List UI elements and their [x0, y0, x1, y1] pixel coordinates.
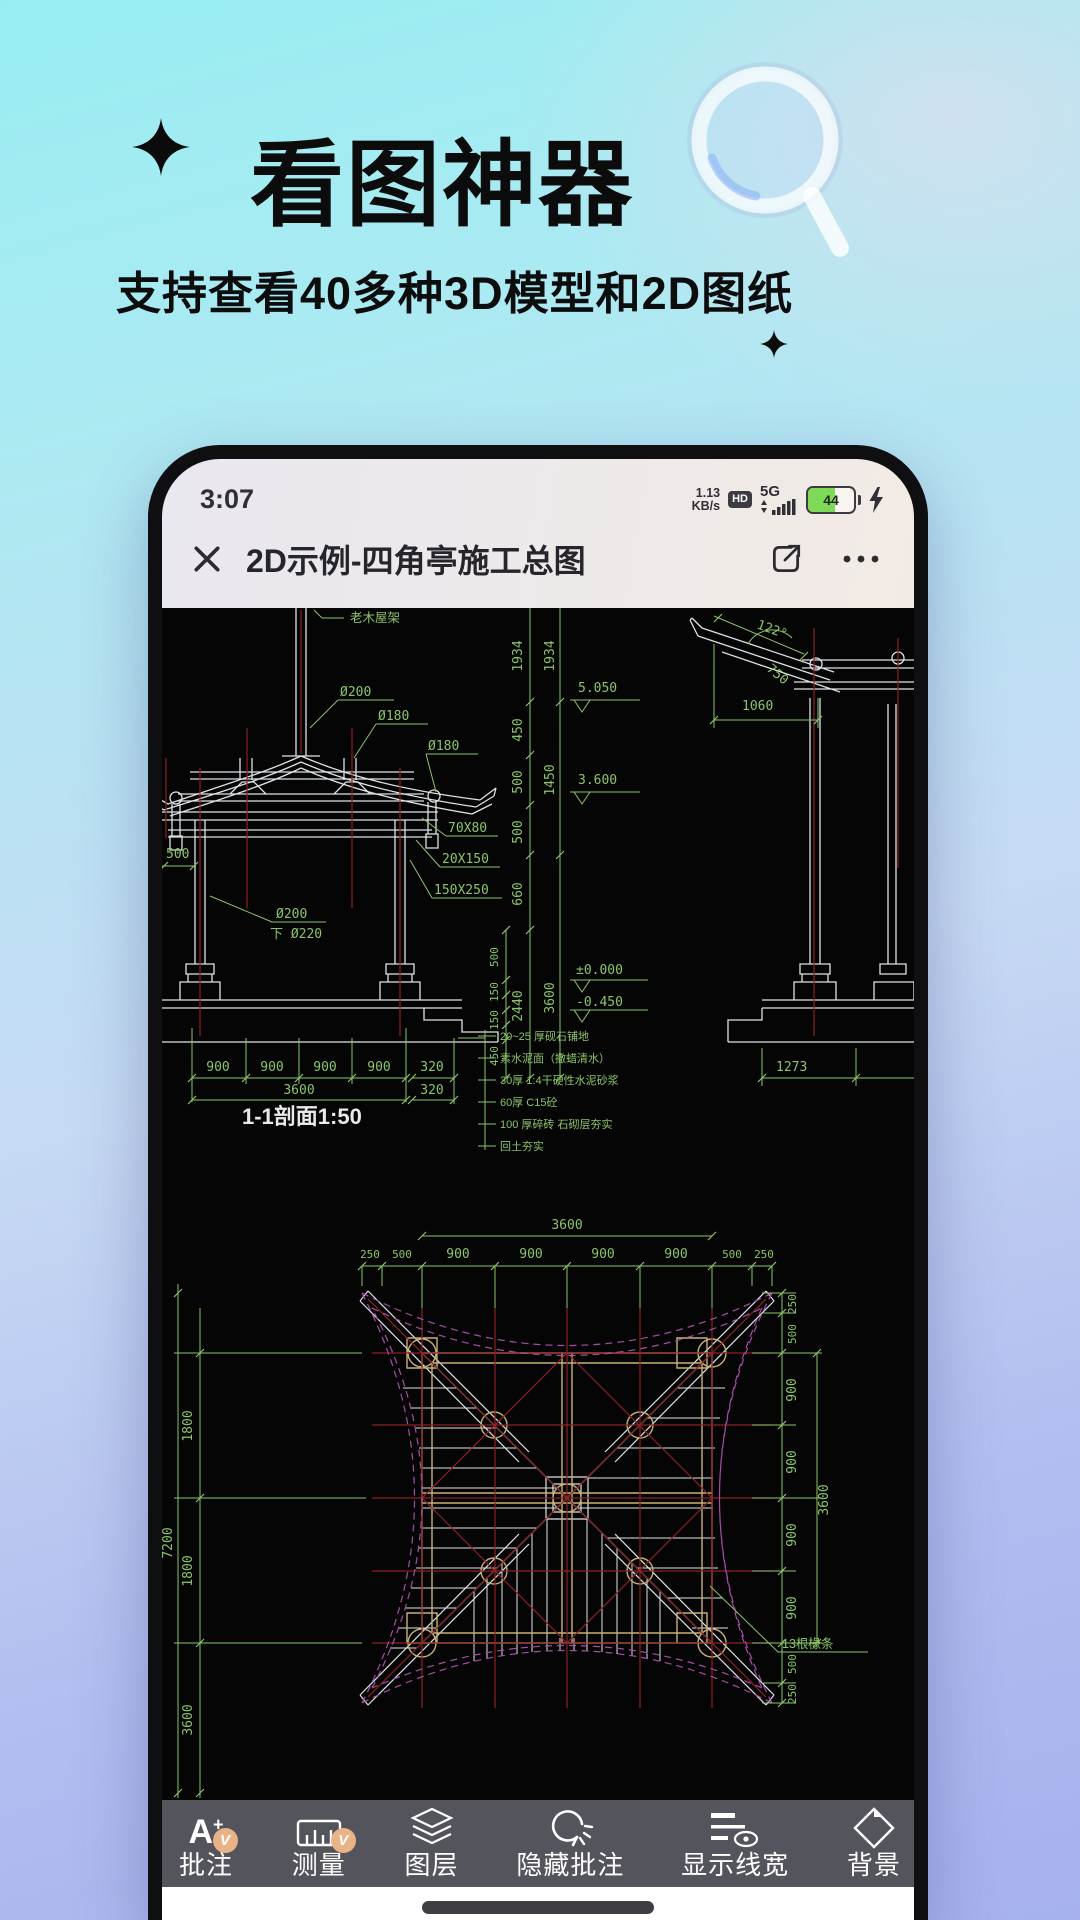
page-subtitle: 支持查看40多种3D模型和2D图纸: [116, 268, 793, 320]
background-button[interactable]: 背景: [846, 1807, 902, 1880]
section-labels: 老木屋架 Ø200 Ø180 Ø180 70X80 20X150 150X250…: [166, 611, 807, 1153]
phone-mockup: 3:07 1.13 KB/s HD 5G: [148, 445, 928, 1920]
cad-text: 1060: [742, 699, 773, 714]
cad-text: 7200: [162, 1527, 176, 1558]
magnifier-graphic: [660, 48, 900, 288]
section-title: 1-1剖面1:50: [242, 1104, 362, 1129]
cad-text: 3600: [283, 1083, 314, 1098]
cad-text: 122°: [755, 618, 790, 643]
cad-text: 450: [511, 718, 526, 741]
layers-button[interactable]: 图层: [404, 1807, 460, 1880]
cad-text: 660: [511, 882, 526, 905]
cad-text: 900: [260, 1060, 283, 1075]
cad-text: 老木屋架: [350, 611, 400, 625]
cad-text: 回土夯实: [500, 1139, 544, 1153]
status-bar: 3:07 1.13 KB/s HD 5G: [162, 459, 914, 517]
cad-text: 900: [519, 1247, 542, 1262]
cad-text: Ø180: [378, 709, 409, 724]
cad-text: 500: [786, 1654, 799, 1674]
cad-text: 250: [786, 1294, 799, 1314]
cad-text: 1450: [543, 764, 558, 795]
status-time: 3:07: [200, 484, 254, 515]
cad-text: 1934: [543, 640, 558, 671]
bottom-toolbar: A+ V 批注 V 测量: [162, 1800, 914, 1887]
cad-text: 1934: [511, 640, 526, 671]
cad-text: 5.050: [578, 681, 617, 696]
cad-text: Ø200: [340, 685, 371, 700]
cad-text: 500: [166, 847, 189, 862]
cad-text: Ø200: [276, 907, 307, 922]
document-title: 2D示例-四角亭施工总图: [246, 536, 768, 582]
cad-text: 150: [488, 1010, 501, 1030]
cad-text: 500: [786, 1324, 799, 1344]
hide-annotations-button[interactable]: 隐藏批注: [516, 1807, 624, 1880]
cad-text: 900: [206, 1060, 229, 1075]
cad-text: 3600: [543, 982, 558, 1013]
cad-text: 900: [785, 1523, 800, 1546]
cad-text: 900: [785, 1378, 800, 1401]
plan-note: 13根椽条: [782, 1637, 834, 1651]
battery-indicator: 44: [806, 486, 861, 514]
sparkle-icon: [132, 118, 190, 176]
cad-text: 500: [392, 1248, 412, 1261]
toolbar-label: 背景: [847, 1851, 901, 1880]
cad-text: 60厚 C15砼: [500, 1096, 557, 1109]
vip-badge: V: [213, 1828, 238, 1853]
charging-bolt-icon: [869, 487, 884, 513]
cad-canvas[interactable]: 老木屋架 Ø200 Ø180 Ø180 70X80 20X150 150X250…: [162, 608, 914, 1800]
cad-text: 30厚 1:4干硬性水泥砂浆: [500, 1073, 619, 1087]
cad-text: 70X80: [448, 821, 487, 836]
background-diamond-icon: [853, 1807, 895, 1849]
cad-text: 1800: [181, 1410, 196, 1441]
section-white-lines: [162, 608, 914, 1042]
cad-text: 3600: [181, 1704, 196, 1735]
measure-ruler-icon: V: [296, 1807, 342, 1849]
cad-text: 250: [786, 1684, 799, 1704]
cad-text: 素水泥面（撒蜡清水）: [500, 1051, 610, 1065]
toolbar-label: 测量: [292, 1851, 346, 1880]
cad-text: Ø180: [428, 739, 459, 754]
toolbar-label: 隐藏批注: [516, 1851, 624, 1880]
dimension-green-lines: [162, 608, 914, 1798]
page-title: 看图神器: [250, 138, 634, 232]
measure-button[interactable]: V 测量: [291, 1807, 347, 1880]
cad-text: 900: [313, 1060, 336, 1075]
close-icon[interactable]: [192, 544, 222, 574]
cad-text: 20X150: [442, 852, 489, 867]
toolbar-label: 批注: [179, 1851, 233, 1880]
toolbar-label: 图层: [405, 1851, 459, 1880]
cad-text: 320: [420, 1083, 443, 1098]
cad-drawing: 老木屋架 Ø200 Ø180 Ø180 70X80 20X150 150X250…: [162, 608, 914, 1800]
cad-text: 3.600: [578, 773, 617, 788]
cad-text: 1800: [181, 1555, 196, 1586]
home-bar: [162, 1887, 914, 1920]
share-icon[interactable]: [768, 541, 804, 577]
cad-text: 250: [360, 1248, 380, 1261]
top-chrome: 3:07 1.13 KB/s HD 5G: [162, 459, 914, 608]
cad-text: 150: [488, 982, 501, 1002]
cad-text: 3600: [551, 1218, 582, 1233]
cad-text: 100 厚碎砖 石砌层夯实: [500, 1117, 612, 1131]
cad-text: 2440: [511, 990, 526, 1021]
home-indicator[interactable]: [422, 1901, 654, 1914]
line-width-button[interactable]: 显示线宽: [681, 1807, 789, 1880]
cad-text: 900: [591, 1247, 614, 1262]
cad-text: 320: [420, 1060, 443, 1075]
hd-badge-icon: HD: [728, 491, 752, 508]
cad-text: -0.450: [576, 995, 623, 1010]
cad-text: 500: [488, 947, 501, 967]
cad-text: ±0.000: [576, 963, 623, 978]
vip-badge: V: [331, 1828, 356, 1853]
cad-text: 3600: [817, 1484, 832, 1515]
promo-page: { "hero": { "title": "看图神器", "subtitle":…: [0, 0, 1080, 1920]
phone-screen: 3:07 1.13 KB/s HD 5G: [162, 459, 914, 1920]
more-icon[interactable]: [842, 554, 884, 564]
line-width-eye-icon: [711, 1807, 759, 1849]
annotate-button[interactable]: A+ V 批注: [178, 1807, 234, 1880]
sparkle-icon-small: [760, 330, 788, 358]
annotate-a-plus-icon: A+ V: [188, 1807, 223, 1849]
cad-text: 900: [446, 1247, 469, 1262]
hide-annotations-icon: [546, 1807, 594, 1849]
cad-text: 下 Ø220: [270, 927, 322, 942]
cad-text: 20~25 厚砚石铺地: [500, 1030, 589, 1043]
cad-text: 250: [754, 1248, 774, 1261]
cad-text: 500: [511, 820, 526, 843]
cad-text: 500: [511, 770, 526, 793]
cad-text: 150X250: [434, 883, 489, 898]
cad-text: 900: [367, 1060, 390, 1075]
nav-bar: 2D示例-四角亭施工总图: [162, 517, 914, 608]
cad-text: 900: [785, 1596, 800, 1619]
layers-icon: [409, 1807, 455, 1849]
net-speed: 1.13 KB/s: [692, 487, 720, 512]
toolbar-label: 显示线宽: [681, 1851, 789, 1880]
cad-text: 500: [722, 1248, 742, 1261]
cad-text: 1273: [776, 1060, 807, 1075]
cad-text: 900: [664, 1247, 687, 1262]
signal-icon: 5G: [760, 484, 798, 515]
cad-text: 900: [785, 1450, 800, 1473]
plan-labels: 3600 250 500 900 900 900 900 500 250 250…: [162, 1218, 834, 1736]
